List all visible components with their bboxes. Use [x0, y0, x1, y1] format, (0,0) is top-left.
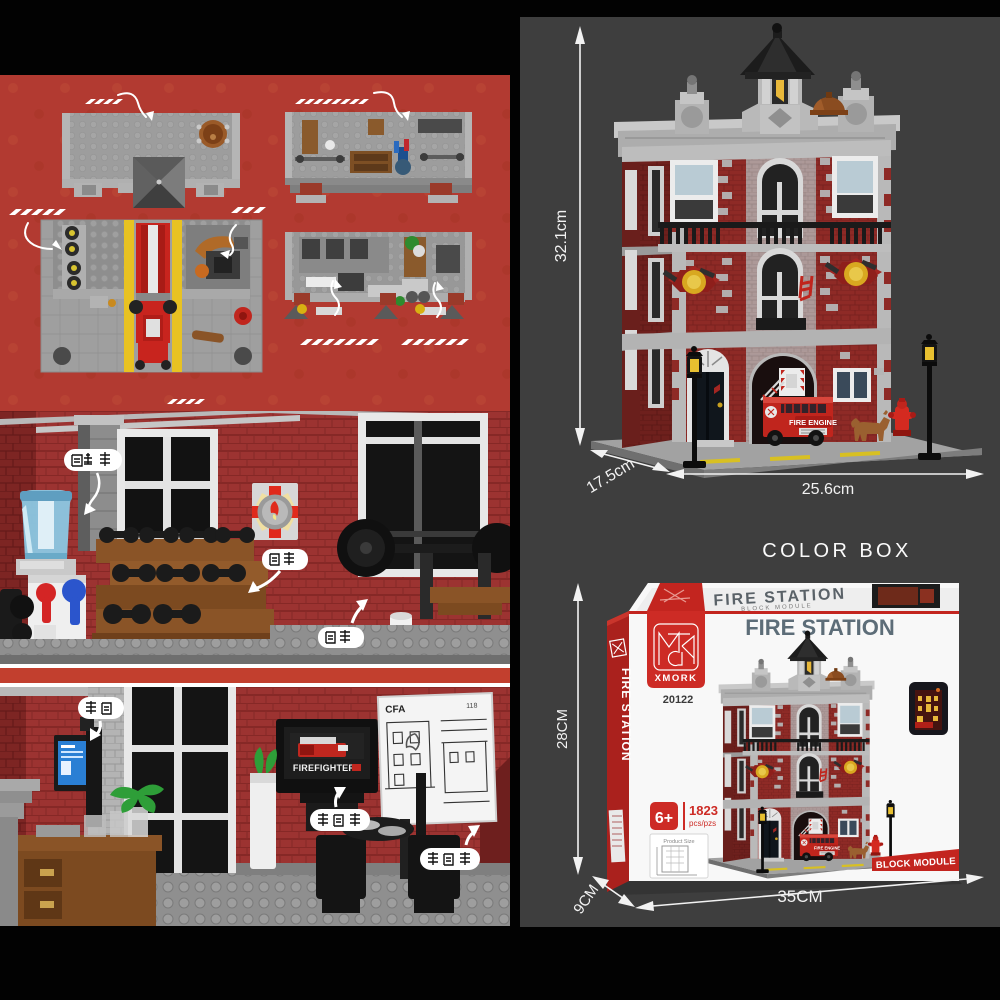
svg-text:FIRE STATION: FIRE STATION [619, 668, 633, 762]
svg-text:9CM: 9CM [570, 882, 602, 918]
svg-text:1823: 1823 [689, 803, 718, 818]
svg-text:17.5cm: 17.5cm [584, 455, 638, 497]
svg-text:FIRE ENGINE: FIRE ENGINE [789, 418, 837, 427]
svg-text:20122: 20122 [663, 694, 694, 706]
svg-text:6+: 6+ [655, 810, 673, 827]
svg-text:25.6cm: 25.6cm [802, 481, 854, 498]
svg-text:FIRE STATION: FIRE STATION [745, 615, 895, 640]
svg-text:CFA: CFA [385, 704, 405, 716]
svg-text:35CM: 35CM [777, 887, 822, 906]
svg-text:COLOR BOX: COLOR BOX [762, 540, 912, 562]
svg-text:XMORK: XMORK [655, 673, 698, 684]
svg-text:Product Size: Product Size [663, 839, 694, 845]
svg-text:28CM: 28CM [554, 709, 571, 749]
svg-text:pcs/pzs: pcs/pzs [689, 819, 716, 828]
svg-text:118: 118 [466, 703, 478, 710]
svg-text:FIREFIGHTER: FIREFIGHTER [293, 763, 355, 773]
svg-text:32.1cm: 32.1cm [553, 210, 570, 262]
